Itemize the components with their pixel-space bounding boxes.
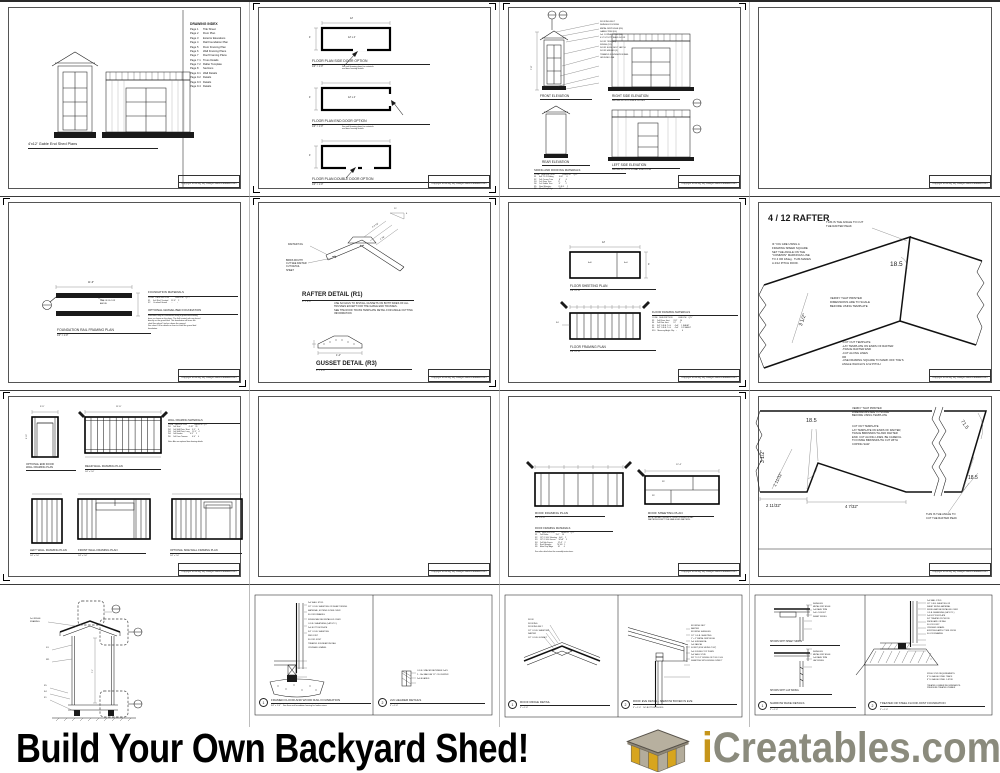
roof-materials-note: See rafter detail sheet for assembly ins… (535, 551, 573, 553)
titleblock: Copyright 2012 Big Sky Designs www.icrea… (178, 369, 240, 382)
template-steps: -CUT OUT TEMPLATE -LAY TEMPLATE ON ENDS … (842, 341, 904, 366)
peak-angle-note: THIS IS THE ANGLE TO CUT THE RAFTER PEAK (826, 221, 863, 228)
callout-code: F4 (44, 691, 47, 694)
scale-label: 1/4" = 1'-0" (78, 555, 87, 558)
template-steps: CUT OUT TEMPLATE LAY TEMPLATE ON ENDS OF… (852, 425, 902, 446)
scale-label: 3" = 1'-0" (520, 707, 528, 710)
dim-label: 12' (350, 17, 353, 20)
titleblock: Copyright 2012 Big Sky Designs www.icrea… (428, 175, 490, 188)
gusset-note: USE 6d NAILS TO INSTALL GUSSETS ON BOTH … (334, 302, 413, 316)
eave-detail-title: ROOF EVE DETAIL - NARROW BOXED IN EVE (633, 700, 737, 705)
title-caption: 4'x12' Gable End Shed Plans (28, 142, 158, 149)
birdsmouth-label: BIRDS MOUTH CUT SEE RAFTER CUT DETAIL SH… (286, 259, 307, 272)
dim-label: 3'-5" (40, 406, 44, 409)
dim-label: 12'-4" (676, 464, 682, 467)
header-detail-title: 2x6 HEADER DETAILS (390, 698, 485, 704)
floor-note: LINE OF FLOOR ABOVE (100, 300, 115, 305)
rake-caption: SHOWN WITH LAP SIDING (770, 690, 832, 695)
plan-note: See wall framing plans for materials and… (342, 126, 374, 131)
scale-label: 1/4" = 1'-0" (570, 351, 581, 354)
sheet-page-7: 12' 4' 4x8 4x4 FLOOR SHEETING PLAN 1/4" … (500, 197, 750, 391)
gusset-detail-title: GUSSET DETAIL (R3) (316, 360, 412, 370)
rake-callouts: SHINGLES METAL DRIP EDGE 1x4 RAKE TRIM L… (813, 651, 830, 664)
sheet-page-13: 2x4 RIDGE FRAMING S1 W1 F5 F4 F1 7'-1" (0, 585, 250, 729)
angle-label: 18.5 (968, 475, 978, 482)
detail-number: 1 (758, 701, 767, 710)
scale-label: 3" = 1'-0" (316, 370, 325, 373)
slope-label: 4 (406, 213, 407, 216)
dim-label: 4' (309, 154, 311, 157)
verify-note: VERIFY THAT PRINTED DIMENSIONS ARE TO SC… (830, 297, 870, 309)
callout-code: F1 (44, 697, 47, 700)
front-wall-label: FRONT WALL FRAMING PLAN (78, 549, 146, 554)
detail-number: 2 (868, 701, 877, 710)
titleblock: Copyright 2012 Big Sky Designs www.icrea… (678, 175, 740, 188)
eave-callouts: ROOFING FELT RAFTER ROOFING SHINGLES 1/2… (691, 625, 723, 663)
sheet-frame (758, 7, 992, 189)
angle-label: 18.5 (806, 418, 817, 425)
drawing-index-title: DRAWING INDEX (190, 22, 218, 27)
foundation-materials-table: CODE DESCRIPTION LENGTH QTY F1 4x4 Rail,… (148, 297, 190, 305)
scale-label: 1/4" = 1'-0" (170, 555, 179, 558)
room-label: 12' x 4' (348, 36, 355, 39)
sheet-page-5: 11'-6" LINE OF FLOOR ABOVE FOUNDATION RA… (0, 197, 250, 391)
scale-label: 3" = 1'-0" (880, 709, 888, 712)
gravel-option-title: OPTIONAL GRAVEL BED FOUNDATION (148, 309, 238, 315)
scale-label: 1/4" = 1'-0" (312, 66, 323, 69)
elevation-callouts: ROOFING FELT SHINGLE ROOFING METAL DRIP … (600, 21, 628, 60)
scale-label: 3" = 1'-0" NO BOTTOM CHORD (633, 707, 663, 710)
sheet-page-6: RAFTER TAIL BIRDS MOUTH CUT SEE RAFTER C… (250, 197, 500, 391)
floor-framing-label: FLOOR FRAMING PLAN (570, 345, 656, 351)
floor-plans-drawing (250, 2, 500, 196)
page: DRAWING INDEX Page 1 Title Sheet Page 2 … (0, 0, 1000, 773)
floor-plan-title: FLOOR PLAN SIDE DOOR OPTION (312, 59, 430, 65)
sheet-page-16: SHINGLES METAL DRIP EDGE 1x4 RAKE TRIM 2… (750, 585, 1000, 729)
brand-i: i (702, 724, 713, 772)
titleblock: Copyright 2012 Big Sky Designs www.icrea… (178, 563, 240, 576)
dim-label: 7'-8" (531, 66, 534, 70)
detail-number: 1 (259, 698, 268, 707)
panel-label: R2 (652, 495, 655, 498)
titleblock: Copyright 2012 Big Sky Designs www.icrea… (929, 563, 991, 576)
panel-label: 4x4 (624, 262, 628, 265)
wall-materials-note: Note: Also see optional door framing det… (168, 441, 203, 443)
callout-code: W1 (46, 659, 49, 662)
roof-sheeting-note: NOTE: INSTALL GUSSETS ON BOTH SIDES OF A… (648, 517, 694, 522)
verify-note: VERIFY THAT PRINTED DIMENSIONS ARE TO SC… (852, 407, 889, 418)
banner: Build Your Own Backyard Shed! iCreatable… (0, 727, 1000, 773)
sheet-page-4: Copyright 2012 Big Sky Designs www.icrea… (750, 2, 1000, 197)
header-callouts: O.S.B. SPACER BETWEEN 2x6'S 2 - 16d NAIL… (417, 670, 448, 681)
ridge-callouts: ROOF ROOFING ROOFING FELT 1/2" O.S.B. SH… (528, 619, 549, 640)
peak-angle-note: THIS IS THE ANGLE TO CUT THE RAFTER PEAK (926, 513, 957, 520)
detail-number: 1 (508, 700, 517, 709)
dim-label: 4' (648, 263, 650, 266)
detail-number: 2 (378, 698, 387, 707)
scale-label: 1/4" = 1'-0" (570, 290, 581, 293)
slope-label: 12 (394, 208, 396, 211)
titleblock: Copyright 2012 Big Sky Designs www.icrea… (178, 175, 240, 188)
icreatables-logo-icon (620, 728, 696, 772)
brand-wordmark: iCreatables.com (702, 724, 1000, 773)
foundation-callouts: 2x4 WALL STUD 1/2" O.S.B. SHEETING OR SH… (308, 601, 347, 651)
sheet-page-8: 4 / 12 RAFTER THIS IS THE ANGLE TO CUT T… (750, 197, 1000, 391)
plans-grid: DRAWING INDEX Page 1 Title Sheet Page 2 … (0, 0, 1000, 727)
front-elevation-label: FRONT ELEVATION (540, 94, 592, 100)
side-wall-label: OPTIONAL SIDE WALL FRAMING PLAN (170, 549, 242, 554)
roof-framing-drawing (500, 391, 750, 585)
banner-headline: Build Your Own Backyard Shed! (16, 725, 529, 772)
floor-plan-title: FLOOR PLAN END DOOR OPTION (312, 119, 430, 125)
callout-code: S1 (46, 647, 49, 650)
section-drawing (0, 585, 250, 729)
sheet-page-9: 3'-5" 11'-5" 6'-10" OPTIONAL END DOOR WA… (0, 391, 250, 585)
callout-code: F5 (44, 685, 47, 688)
dim-label: 4 7/32" (845, 504, 858, 510)
panel-label: 4x8 (588, 262, 592, 265)
sheet-frame (258, 396, 491, 577)
brand-tld: com (921, 724, 1000, 772)
gravel-option-text: Shed floor may be constructed using a gr… (148, 315, 200, 330)
ridge-note: 2x4 RIDGE FRAMING (30, 618, 41, 623)
rafter-template-title: 4 / 12 RAFTER (768, 212, 830, 224)
foundation-requirements: STEEL STUD REQUIREMENTS: 8" 16 GAUGE STE… (927, 673, 961, 690)
brand-name: Creatables (713, 724, 911, 772)
scale-label: 1/4" = 1'-0" (30, 555, 39, 558)
roof-sheeting-label: ROOF SHEETING PLAN (648, 511, 714, 517)
dim-label: 12' (602, 241, 605, 244)
angle-label: 18.5 (890, 261, 903, 270)
dim-label: 11'-5" (116, 406, 121, 409)
titleblock: Copyright 2012 Big Sky Designs www.icrea… (929, 175, 991, 188)
foundation-callouts: 2x4 WALL STUD 1/2" O.S.B. SHEETING OR SH… (927, 600, 958, 636)
titleblock: Copyright 2012 Big Sky Designs www.icrea… (929, 369, 991, 382)
drawing-index-list: Page 1 Title Sheet Page 2 Floor Plan Pag… (190, 28, 228, 89)
detail-number: 2 (621, 700, 630, 709)
scale-label: 1/4" = 1'-0" (57, 335, 68, 338)
floor-materials-table: CODE DESCRIPTION LENGTH QTY F3 2x4 Floor… (652, 317, 692, 332)
sheet-page-15: ROOF ROOFING ROOFING FELT 1/2" O.S.B. SH… (500, 585, 750, 729)
scale-label: 1/4" = 1'-0" (312, 184, 323, 187)
rafter-detail-title: RAFTER DETAIL (R1) (302, 291, 414, 301)
sheet-page-2: 12' 4' 12' x 4' FLOOR PLAN SIDE DOOR OPT… (250, 2, 500, 197)
foundation-plan-label: FOUNDATION RAIL FRAMING PLAN (57, 328, 151, 334)
dim-label: 4' (309, 96, 311, 99)
scale-label: 3" = 1'-0" (302, 301, 311, 304)
sheet-page-11: 12'-4" R2 R2 ROOF FRAMING PLAN 1/4" = 1'… (500, 391, 750, 585)
materials-table: CODE DESCRIPTION LENGTH QTY S1 4x8 T1-11… (534, 174, 578, 190)
end-door-wall-label: OPTIONAL END DOOR WALL FRAMING PLAN (26, 463, 76, 471)
rafter-tail-label: RAFTER TAIL (288, 243, 303, 246)
roof-framing-label: ROOF FRAMING PLAN (535, 511, 605, 517)
titleblock: Copyright 2012 Big Sky Designs www.icrea… (428, 563, 490, 576)
sheet-page-10: Copyright 2012 Big Sky Designs www.icrea… (250, 391, 500, 585)
dim-label: 2 11/32" (766, 503, 781, 509)
ridge-detail-title: ROOF RIDGE DETAIL (520, 700, 610, 706)
scale-label: 1/4" = 1'-0" (85, 471, 94, 474)
wall-materials-table: CODE DESCRIPTION L0ENGTH QTY W1 2x4 Stud… (168, 424, 207, 438)
floor-plan-title: FLOOR PLAN DOUBLE DOOR OPTION (312, 177, 430, 183)
sheet-page-14: 2x4 WALL STUD 1/2" O.S.B. SHEETING OR SH… (250, 585, 500, 729)
titleblock: Copyright 2012 Big Sky Designs www.icrea… (678, 563, 740, 576)
scale-label: 1/4" = 1'-0" (535, 517, 545, 520)
panel-label: R2 (662, 481, 665, 484)
foundation-detail-title: TREATED OR STEEL FLOOR JOIST FOUNDATION (880, 702, 985, 707)
scale-label: 3" = 1'-0" (390, 705, 398, 708)
sheet-page-12: VERIFY THAT PRINTED DIMENSIONS ARE TO SC… (750, 391, 1000, 585)
rake-detail-title: NARROW RAKE DETAILS (770, 702, 856, 708)
titleblock: Copyright 2012 Big Sky Designs www.icrea… (678, 369, 740, 382)
rear-elevation-label: REAR ELEVATION (542, 160, 590, 166)
room-label: 12' x 4' (348, 96, 355, 99)
brand-dot: . (911, 724, 922, 772)
rake-caption: SHOWN WITH SHEET SIDING (770, 641, 840, 646)
titleblock: Copyright 2012 Big Sky Designs www.icrea… (428, 369, 490, 382)
foundation-detail-title: FRAMED FLOOR AND WOOD RAIL FOUNDATION (271, 698, 371, 704)
scale-label: 3/4" = 1'-0" See floor and foundation fr… (271, 705, 327, 708)
dim-label: 3 1/2" (760, 450, 767, 463)
sheet-page-3: ROOFING FELT SHINGLE ROOFING METAL DRIP … (500, 2, 750, 197)
scale-label: 1/4" = 1'-0" (312, 126, 323, 129)
dim-label: 1'-4" (336, 354, 341, 357)
scale-label: 3" = 1'-0" (770, 709, 778, 712)
dim-label: 11'-6" (88, 281, 94, 284)
dim-label: 6'-10" (26, 434, 29, 439)
rake-callouts: SHINGLES METAL DRIP EDGE 1x4 RAKE TRIM 2… (813, 603, 830, 619)
rim-code: F4 (556, 322, 559, 325)
floor-materials-title: FLOOR FRAMING MATERIALS (652, 311, 738, 316)
rear-wall-label: REAR WALL FRAMING PLAN (85, 465, 161, 470)
floor-framing-drawing (500, 197, 750, 391)
plan-note: See wall framing plans for materials and… (342, 66, 374, 71)
sheet-page-1: DRAWING INDEX Page 1 Title Sheet Page 2 … (0, 2, 250, 197)
floor-sheeting-label: FLOOR SHEETING PLAN (570, 284, 656, 290)
dim-label: 4' (309, 36, 311, 39)
speed-square-note: IF YOU ARE USING A FRAMING SPEED SQUARE … (772, 243, 811, 266)
roof-materials-table: CODE DESCRIPTION LENGTH QTY R1 2x4 Rafte… (535, 532, 574, 549)
dim-label: 7'-1" (92, 669, 95, 673)
foundation-materials-title: FOUNDATION MATERIALS (148, 291, 238, 297)
right-elevation-sub: SHOWN WITH DOUBLE DOORS (612, 100, 645, 103)
